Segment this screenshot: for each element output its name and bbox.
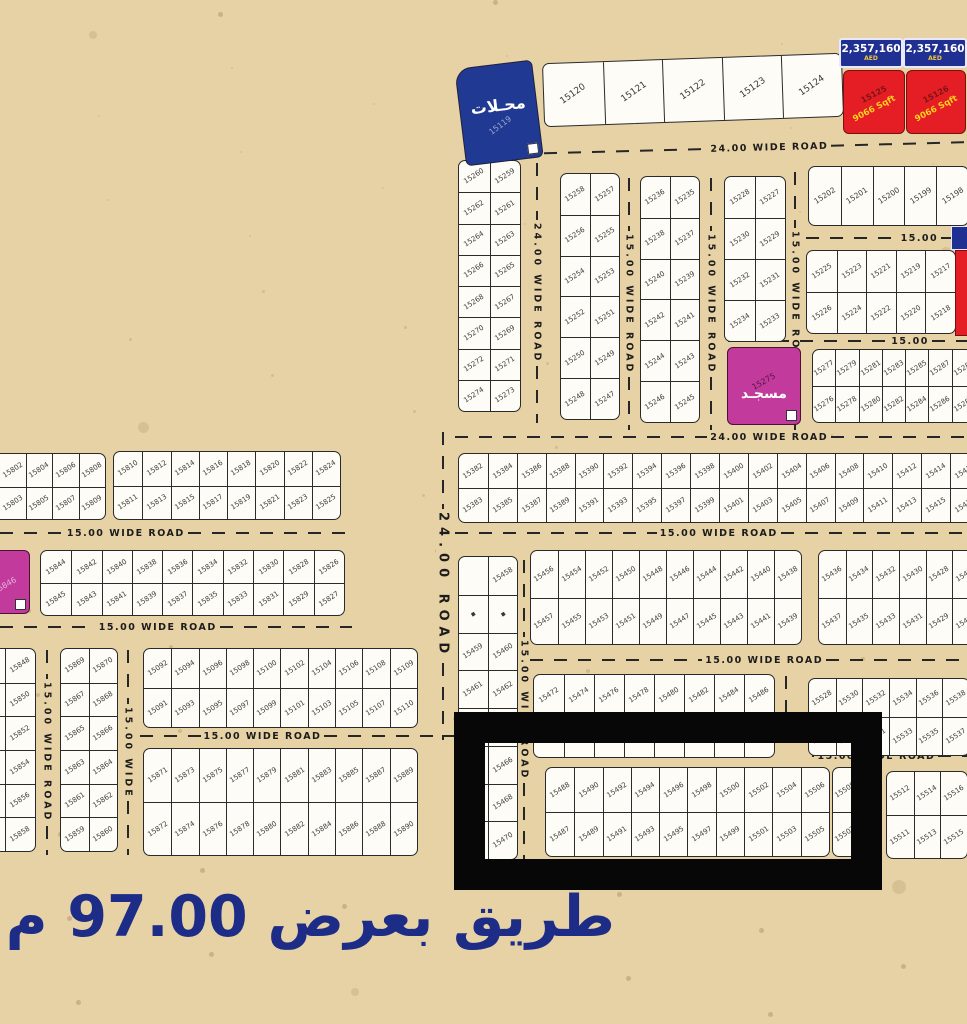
plot-number: 15390 [578,462,600,480]
plot-cell: 15268 [459,286,490,317]
plot-number: 15833 [227,590,249,608]
plot-cell: 15458 [488,557,517,595]
plot-number: 15802 [2,461,24,479]
plot-block: 1586915870158671586815865158661586315864… [60,648,118,852]
plot-number: 15844 [45,558,67,576]
plot-number: 15242 [644,311,666,329]
plot-cell: 15821 [255,486,283,520]
plot-number: 15514 [916,784,938,802]
plot-cell: 15869 [61,649,89,683]
road-label: 15.00 WIDE ROAD [657,528,781,539]
desert-speck [271,374,274,377]
plot-number: 15456 [533,565,555,583]
plot-number: 15536 [918,689,940,707]
plot-cell: 15412 [892,454,921,488]
plot-cell: 15218 [925,292,955,333]
plot-cell: 15120 [543,62,605,126]
plot-number: 15831 [257,590,279,608]
plot-number: 15434 [848,565,870,583]
plot-cell: 15889 [390,749,417,802]
mosque-block: 15275 مسجـد [727,347,801,425]
road-dashes [442,663,444,740]
corner-mark-icon [527,142,539,154]
road-label: 15.00 WIDE ROAD [64,528,188,539]
plot-cell: 15443 [720,598,747,645]
plot-number: 15512 [889,784,911,802]
plot-cell: 15876 [199,802,226,855]
premium-plot-partial [955,250,967,336]
plot-block: 1584415842158401583815836158341583215830… [40,550,345,616]
plot-number: 15839 [136,590,158,608]
plot-number: 15533 [892,727,914,745]
plot-cell: 15836 [162,551,192,583]
plot-cell: 15534 [889,679,916,717]
road-width-caption: طريق بعرض 97.00 م [15,884,615,950]
plot-number: 15106 [338,659,360,677]
plot-cell: 15389 [546,488,575,522]
plot-cell: 15864 [89,750,117,784]
plot-number: 15881 [283,766,305,784]
plot-number: 15452 [588,565,610,583]
plot-number: 15223 [841,262,863,280]
plot-cell: 15434 [846,551,873,598]
plot-cell: 15435 [846,598,873,645]
road: 24.00 WIDE ROAD [520,135,967,161]
plot-number: 15440 [750,565,772,583]
plot-number: 15247 [594,390,616,408]
plot-number: 15435 [848,612,870,630]
plot-number: 15395 [636,496,658,514]
plot-cell: 15877 [226,749,253,802]
plot-number: 15866 [92,725,114,743]
plot-number: 15249 [594,349,616,367]
plot-number: 15239 [674,271,696,289]
price-currency: AED [864,56,878,62]
plot-number: 15404 [780,462,802,480]
desert-speck [249,235,251,237]
plot-cell: 15242 [641,299,670,340]
plot-cell: 15102 [280,649,307,688]
plot-number: 15883 [311,766,333,784]
road-label: 15.00 WIDE ROAD [702,655,826,666]
plot-cell: 15404 [777,454,806,488]
plot-cell: 15228 [725,177,755,218]
plot-number: 15233 [759,312,781,330]
plot-number: 15860 [92,826,114,844]
plot-block: 1545615454154521545015448154461544415442… [530,550,802,645]
plot-number: 15862 [92,792,114,810]
desert-speck [240,151,242,153]
shops-label: محـلات [470,93,527,119]
plot-cell: 15433 [872,598,899,645]
plot-number: 15098 [229,659,251,677]
plot-cell: 15843 [71,583,101,615]
facility-block: 15846 [0,550,30,614]
plot-cell: 15428 [926,551,953,598]
plot-cell: 15278 [835,386,858,422]
plot-cell: 15870 [89,649,117,683]
plot-number: 15263 [494,231,516,249]
plot-number: 15448 [642,565,664,583]
plot-number: 15828 [288,558,310,576]
plot-number: 15878 [229,820,251,838]
plot-cell: 15880 [253,802,280,855]
plot-number: 15872 [146,820,168,838]
road-dashes [442,432,444,509]
plot-cell: 15535 [916,717,943,755]
plot-number: 15445 [696,612,718,630]
plot-number: 15392 [607,462,629,480]
plot-number: 15437 [821,612,843,630]
plot-number: 15097 [229,699,251,717]
plot-cell: 15283 [882,350,905,386]
plot-cell: 15123 [722,56,784,120]
plot-cell: 15279 [835,350,858,386]
plot-number: 15398 [694,462,716,480]
plot-number: 15274 [463,387,485,405]
desert-speck [586,669,590,673]
plot-number: 15120 [560,82,589,106]
plot-cell: 15885 [335,749,362,802]
plot-number: 15863 [64,758,86,776]
plot-cell: 15845 [41,583,71,615]
plot-number: 15278 [836,395,858,413]
road-label: 24.00 ROAD [436,509,451,662]
plot-number: 15122 [679,78,708,102]
plot-cell: 15881 [280,749,307,802]
plot-number: 15104 [311,659,333,677]
plot-cell: 15810 [114,452,142,486]
plot-cell: 15417 [950,488,967,522]
shops-block: محـلات 15119 [454,60,543,167]
plot-number: 15879 [256,766,278,784]
plot-number: 15810 [117,460,139,478]
plot-number: 15478 [628,686,650,704]
plot-cell: 15512 [887,772,914,815]
plot-cell: 15829 [283,583,313,615]
plot-number: 15382 [462,462,484,480]
plot-number: 15273 [494,387,516,405]
plot-cell: 15478 [624,675,654,716]
plot-number: 15821 [259,494,281,512]
road: 15.00 WIDE ROAD [530,653,967,667]
plot-number: 15515 [943,828,965,846]
plot-number: 15257 [594,185,616,203]
plot-number: 15449 [642,612,664,630]
plot-number: 15412 [896,462,918,480]
plot-cell: 15872 [144,802,171,855]
plot-number: 15830 [257,558,279,576]
plot-number: 15820 [259,460,281,478]
desert-speck [790,127,792,129]
plot-number: 15229 [759,230,781,248]
plot-cell: 15236 [641,177,670,218]
plot-number: 15459 [462,643,484,661]
plot-cell: 15874 [171,802,198,855]
plot-cell: 15280 [859,386,882,422]
plot-cell: 15457 [531,598,558,645]
plot-number: 15809 [81,494,103,512]
plot-cell: 15394 [632,454,661,488]
plot-cell: 15430 [899,551,926,598]
plot-number: 15230 [729,230,751,248]
plot-cell: 15390 [575,454,604,488]
plot-cell: 15263 [490,224,521,255]
plot-cell: 15265 [490,255,521,286]
plot-cell: 15809 [79,487,105,520]
plot-cell: 15462 [488,670,517,708]
plot-number: 15260 [463,168,485,186]
plot-cell: 15883 [308,749,335,802]
plot-number: 15859 [64,826,86,844]
desert-speck [200,868,205,873]
plot-cell: 15094 [171,649,198,688]
plot-number: 15248 [564,390,586,408]
plot-number: 15391 [578,496,600,514]
plot-number: 15436 [821,565,843,583]
plot-number: 15386 [520,462,542,480]
plot-number: 15237 [674,230,696,248]
plot-block: 1523615235152381523715240152391524215241… [640,176,700,423]
plot-cell: 15393 [603,488,632,522]
plot-number: 15877 [229,766,251,784]
plot-number: 15428 [928,565,950,583]
plot-cell: 15862 [89,784,117,818]
desert-speck [555,446,558,449]
plot-number: 15484 [718,686,740,704]
plot-cell: 15868 [89,683,117,717]
plot-number: 15236 [644,188,666,206]
plot-cell: 15226 [807,292,837,333]
plot-number: 15511 [889,828,911,846]
plot-cell: 15842 [71,551,101,583]
plot-number: 15110 [393,699,415,717]
plot-number: 15446 [669,565,691,583]
plot-number: 15101 [283,699,305,717]
plot-block: 1509215094150961509815100151021510415106… [143,648,418,728]
plot-cell: 15441 [747,598,774,645]
plot-cell: 15445 [693,598,720,645]
desert-speck [524,223,526,225]
plot-cell: 15413 [892,488,921,522]
plot-number: 15454 [561,565,583,583]
plot-cell: 15121 [603,60,665,124]
plot-cell: 15414 [921,454,950,488]
plot-cell: 15459 [459,633,488,671]
plot-number: 15397 [665,496,687,514]
plot-number: 15841 [106,590,128,608]
road-dashes [220,626,352,628]
plot-number: 15121 [620,80,649,104]
plot-number: 15805 [28,494,50,512]
plot-number: 15836 [167,558,189,576]
plot-cell: 15486 [744,675,774,716]
plot-number: 15840 [106,558,128,576]
plot-cell: 15516 [940,772,967,815]
plot-number: 15882 [283,820,305,838]
plot-cell: 15484 [714,675,744,716]
plot-number: 15537 [945,727,967,745]
plot-cell: 15482 [684,675,714,716]
plot-number: 15244 [644,352,666,370]
desert-speck [422,494,425,497]
plot-number: 15819 [230,494,252,512]
plot-number: 15858 [9,826,31,844]
plot-number: 15266 [463,262,485,280]
plot-cell: 15097 [226,688,253,727]
plot-number: 15807 [55,494,77,512]
plot-number: 15415 [925,496,947,514]
plot-cell: 15253 [590,256,619,297]
plot-cell: 15824 [312,452,340,486]
desert-speck [413,410,416,413]
road-label: 24.00 WIDE ROAD [707,140,831,154]
plot-cell: 15383 [459,488,488,522]
road-dashes [806,237,898,239]
plot-number: 15513 [916,828,938,846]
plot-cell: 15124 [781,54,843,118]
plot-number: 15235 [674,188,696,206]
plot-number: 15824 [315,460,337,478]
plot-number: 15095 [201,699,223,717]
plot-number: 15270 [463,324,485,342]
road-label: 15.00 WIDE ROAD [624,231,635,377]
plot-number: 15271 [494,356,516,374]
plot-number: 15823 [287,494,309,512]
plot-number: 15396 [665,462,687,480]
plot-cell: 15409 [835,488,864,522]
plot-cell: 15452 [585,551,612,598]
plot-number: 15285 [906,359,928,377]
plot-number: 15538 [945,689,967,707]
plot-cell: 15828 [283,551,313,583]
plot-cell: 15840 [102,551,132,583]
price-tag: 2,357,160 AED [839,38,903,68]
plot-number: 15812 [146,460,168,478]
desert-speck [231,67,233,69]
plot-number: 15442 [723,565,745,583]
plot-number: 15874 [174,820,196,838]
plot-cell: 15200 [873,167,905,225]
plot-number: 15808 [81,461,103,479]
plot-number: 15416 [954,462,967,480]
plot-cell: 15235 [670,177,699,218]
desert-speck [209,952,214,957]
plot-number: 15804 [28,461,50,479]
road-dashes [710,178,712,231]
plot-cell: 15386 [517,454,546,488]
plot-number: 15403 [752,496,774,514]
price-tag-partial [951,226,967,250]
plot-cell: 15536 [916,679,943,717]
plot-number: 15870 [92,657,114,675]
plot-cell [459,557,488,595]
desert-speck [262,290,265,293]
plot-map: محـلات 15119 15275 مسجـد 15846 15125 906… [0,0,967,1024]
plot-cell: 15848 [5,649,35,683]
plot-cell: 15220 [896,292,926,333]
plot-cell: 15830 [253,551,283,583]
road-dashes [536,163,538,220]
plot-cell: 15399 [690,488,719,522]
plot-cell: 15234 [725,300,755,341]
plot-cell: 15222 [866,292,896,333]
plot-number: 15868 [92,691,114,709]
plot-cell: 15198 [936,167,967,225]
plot-cell: 15411 [863,488,892,522]
plot-number: 15258 [564,185,586,203]
plot-number: 15447 [669,612,691,630]
plot-cell: 15401 [719,488,748,522]
plot-block: 1522815227152301522915232152311523415233 [724,176,786,342]
plot-number: 15438 [777,565,799,583]
plot-number: 15890 [393,820,415,838]
plot-number: 15852 [9,725,31,743]
plot-cell: 15387 [517,488,546,522]
price-currency: AED [928,56,942,62]
plot-number: 15277 [813,359,835,377]
road-dashes [932,340,967,342]
plot-cell: 15239 [670,259,699,300]
road-dashes [46,650,48,679]
plot-cell: 15451 [612,598,639,645]
plot-cell: 15264 [459,224,490,255]
plot-cell: 15804 [26,454,52,487]
plot-cell: 15385 [488,488,517,522]
road-dashes [127,650,129,704]
plot-cell: 15873 [171,749,198,802]
plot-cell: 15400 [719,454,748,488]
plot-number: 15279 [836,359,858,377]
road: 15.00 WIDE ROAD [0,526,352,540]
plot-number: 15832 [227,558,249,576]
road-label: 15.00 [888,336,932,347]
plot-number: 15261 [494,199,516,217]
plot-number: 15886 [338,820,360,838]
plot-number: 15276 [813,395,835,413]
plot-cell: 15396 [661,454,690,488]
plot-cell: 15392 [603,454,632,488]
plot-cell: ▪ [488,595,517,633]
road-dashes [523,560,525,637]
plot-cell: 15246 [641,381,670,422]
plot-number: 15243 [674,352,696,370]
road-dashes [455,532,657,534]
plot-cell: 15827 [314,583,344,615]
plot-cell: 15438 [774,551,801,598]
mosque-label: مسجـد [741,386,787,402]
plot-number: 15803 [2,494,24,512]
plot-cell: 15252 [561,296,590,337]
plot-number: 15867 [64,691,86,709]
plot-number: 15407 [809,496,831,514]
plot-number: 15268 [463,293,485,311]
plot-cell: 15859 [61,817,89,851]
plot-cell: 15388 [546,454,575,488]
plot-cell: 15402 [748,454,777,488]
plot-cell: 15237 [670,218,699,259]
plot-cell: 15449 [639,598,666,645]
plot-cell: 15834 [192,551,222,583]
plot-cell: 15231 [755,259,785,300]
plot-cell: 15398 [690,454,719,488]
plot-cell: 15439 [774,598,801,645]
plot-number: 15286 [929,395,951,413]
plot-block: 1526015259152621526115264152631526615265… [458,160,521,412]
plot-number: 15865 [64,725,86,743]
plot-cell: 15407 [806,488,835,522]
plot-cell: 15270 [459,317,490,348]
